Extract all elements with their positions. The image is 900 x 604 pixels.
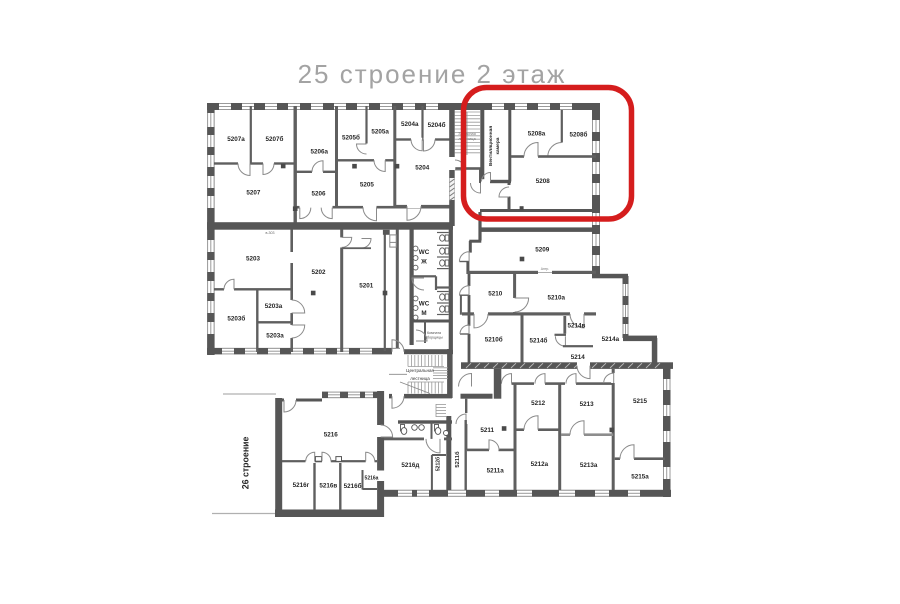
- svg-text:5204б: 5204б: [428, 121, 446, 129]
- svg-text:5205а: 5205а: [371, 129, 389, 136]
- svg-text:5209: 5209: [535, 246, 550, 253]
- svg-text:5202: 5202: [311, 269, 326, 276]
- svg-text:Вентиляционная: Вентиляционная: [488, 126, 494, 166]
- svg-text:5205б: 5205б: [342, 134, 360, 142]
- svg-text:в-303: в-303: [265, 231, 274, 235]
- svg-text:Антр.: Антр.: [541, 267, 550, 271]
- svg-text:5207а: 5207а: [227, 136, 245, 143]
- svg-text:5208а: 5208а: [528, 131, 546, 138]
- svg-text:5212: 5212: [531, 400, 546, 407]
- svg-text:5211б: 5211б: [454, 451, 461, 468]
- svg-text:5210б: 5210б: [485, 336, 503, 344]
- svg-text:5216: 5216: [324, 432, 339, 439]
- svg-text:5203: 5203: [246, 255, 261, 262]
- svg-text:5216в: 5216в: [319, 483, 337, 490]
- svg-text:5201: 5201: [359, 283, 374, 290]
- svg-text:Комната: Комната: [427, 331, 441, 335]
- svg-text:5206: 5206: [311, 191, 326, 198]
- svg-text:5213: 5213: [580, 401, 595, 408]
- svg-text:уборщицы: уборщицы: [425, 336, 443, 340]
- svg-text:5207: 5207: [246, 190, 261, 197]
- svg-text:5211: 5211: [480, 427, 494, 434]
- svg-text:5211а: 5211а: [487, 468, 505, 475]
- svg-text:5207б: 5207б: [266, 135, 284, 143]
- svg-text:5216б: 5216б: [344, 482, 362, 490]
- svg-text:5208б: 5208б: [570, 131, 588, 139]
- svg-text:5214б: 5214б: [529, 336, 547, 344]
- svg-text:5204а: 5204а: [401, 121, 419, 128]
- svg-text:5215: 5215: [633, 398, 648, 405]
- svg-text:5212б: 5212б: [435, 457, 442, 471]
- svg-text:лестница: лестница: [410, 376, 430, 381]
- svg-text:5215а: 5215а: [631, 474, 649, 481]
- svg-text:М: М: [421, 310, 426, 317]
- svg-text:5216г: 5216г: [293, 482, 310, 489]
- svg-text:26 строение: 26 строение: [241, 436, 251, 489]
- svg-text:5204: 5204: [415, 165, 430, 172]
- svg-text:5210: 5210: [488, 291, 503, 298]
- svg-text:5205: 5205: [360, 181, 375, 188]
- svg-text:5203а: 5203а: [265, 303, 283, 310]
- svg-text:5216д: 5216д: [401, 462, 419, 469]
- svg-text:5206а: 5206а: [310, 149, 328, 156]
- svg-text:камера: камера: [496, 137, 501, 154]
- svg-text:WC: WC: [419, 301, 430, 308]
- svg-text:5214: 5214: [571, 354, 586, 361]
- svg-text:5208: 5208: [536, 178, 551, 185]
- svg-text:25 строение 2 этаж: 25 строение 2 этаж: [298, 59, 567, 89]
- svg-text:5212а: 5212а: [531, 461, 549, 468]
- svg-text:5216а: 5216а: [365, 476, 379, 482]
- svg-text:Ж: Ж: [420, 259, 427, 266]
- svg-text:5203а: 5203а: [266, 332, 284, 339]
- svg-text:WC: WC: [419, 249, 430, 256]
- svg-text:5214в: 5214в: [568, 322, 586, 329]
- svg-text:Центральная: Центральная: [406, 368, 434, 373]
- svg-text:5214а: 5214а: [602, 336, 620, 343]
- svg-text:5213а: 5213а: [580, 462, 598, 469]
- svg-text:5203б: 5203б: [227, 314, 245, 322]
- svg-text:5210а: 5210а: [548, 294, 566, 301]
